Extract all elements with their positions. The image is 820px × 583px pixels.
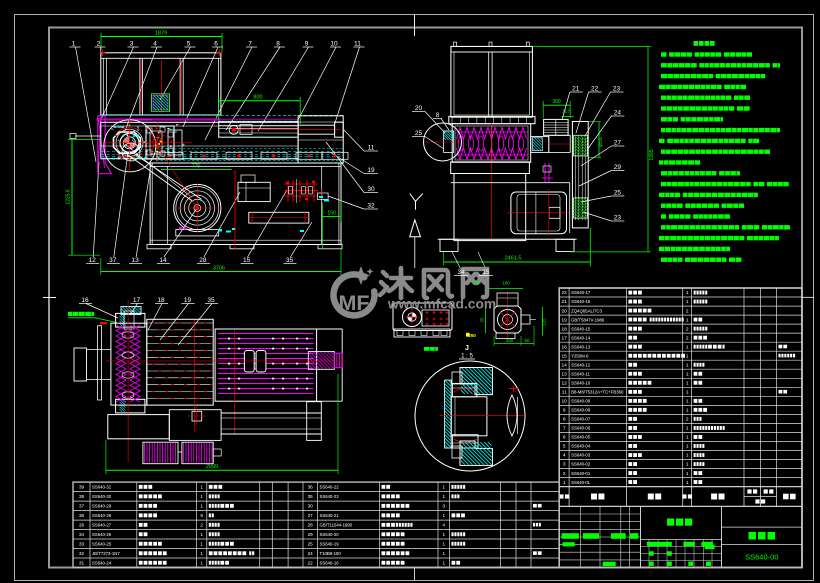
svg-text:1: 1 bbox=[443, 532, 446, 537]
svg-text:SS640-28: SS640-28 bbox=[92, 513, 112, 518]
svg-text:6: 6 bbox=[214, 41, 218, 48]
svg-text:SS640-05: SS640-05 bbox=[571, 435, 591, 440]
svg-text:15: 15 bbox=[562, 353, 568, 359]
svg-text:2: 2 bbox=[686, 417, 689, 423]
svg-text:29: 29 bbox=[614, 164, 622, 171]
svg-text:GB/T5847V-1986: GB/T5847V-1986 bbox=[571, 317, 605, 322]
svg-text:SS640-16: SS640-16 bbox=[571, 299, 591, 304]
svg-text:160: 160 bbox=[506, 338, 514, 343]
svg-text:11: 11 bbox=[562, 390, 567, 396]
svg-text:1: 1 bbox=[686, 462, 689, 468]
svg-text:6: 6 bbox=[563, 435, 566, 441]
svg-text:36: 36 bbox=[308, 485, 314, 490]
svg-text:35: 35 bbox=[286, 257, 294, 264]
svg-text:2461.5: 2461.5 bbox=[505, 256, 522, 262]
svg-text:10: 10 bbox=[330, 41, 338, 48]
svg-text:www.mfcad.com: www.mfcad.com bbox=[387, 297, 496, 312]
svg-text:1: 1 bbox=[686, 372, 689, 378]
svg-text:1: 1 bbox=[200, 561, 203, 566]
svg-text:SS640-03: SS640-03 bbox=[571, 453, 591, 458]
svg-text:4: 4 bbox=[563, 453, 566, 459]
svg-text:8: 8 bbox=[563, 417, 566, 423]
svg-text:1: 1 bbox=[686, 480, 689, 486]
svg-text:1: 1 bbox=[686, 362, 689, 368]
svg-text:25: 25 bbox=[415, 130, 423, 137]
svg-text:1: 1 bbox=[686, 399, 689, 405]
svg-text:100: 100 bbox=[502, 281, 510, 286]
svg-text:SS640-07: SS640-07 bbox=[571, 417, 591, 422]
svg-text:1: 1 bbox=[200, 551, 203, 556]
svg-text:J: J bbox=[465, 345, 469, 352]
svg-text:1: 1 bbox=[686, 444, 689, 450]
svg-text:Y250M-6: Y250M-6 bbox=[571, 353, 589, 358]
svg-text:1: 1 bbox=[443, 485, 446, 490]
svg-text:SS640-16: SS640-16 bbox=[320, 561, 340, 566]
svg-text:1: 1 bbox=[443, 551, 446, 556]
svg-text:SS640-21: SS640-21 bbox=[320, 513, 340, 518]
svg-text:SS640-30: SS640-30 bbox=[92, 494, 112, 499]
svg-text:SS640-15: SS640-15 bbox=[571, 326, 591, 331]
svg-text:738: 738 bbox=[473, 280, 481, 285]
svg-text:SS640-31: SS640-31 bbox=[92, 485, 112, 490]
svg-text:7: 7 bbox=[563, 426, 566, 432]
svg-text:27: 27 bbox=[308, 513, 314, 518]
svg-text:17: 17 bbox=[562, 335, 568, 341]
svg-text:SS640-24: SS640-24 bbox=[92, 561, 112, 566]
svg-text:16: 16 bbox=[81, 297, 89, 304]
svg-text:12: 12 bbox=[89, 257, 97, 264]
svg-text:113: 113 bbox=[562, 109, 570, 114]
svg-text:2999: 2999 bbox=[206, 464, 218, 470]
svg-text:2: 2 bbox=[97, 41, 101, 48]
svg-text:2: 2 bbox=[200, 523, 203, 528]
svg-text:3: 3 bbox=[443, 504, 446, 509]
svg-text:22: 22 bbox=[308, 561, 314, 566]
svg-text:1: 1 bbox=[72, 41, 76, 48]
svg-text:SS640-23: SS640-23 bbox=[320, 494, 340, 499]
svg-text:T10B8-150: T10B8-150 bbox=[320, 551, 342, 556]
svg-text:1: 1 bbox=[686, 299, 689, 305]
svg-text:1: 1 bbox=[443, 513, 446, 518]
svg-text:SS640-08: SS640-08 bbox=[571, 408, 591, 413]
svg-text:28: 28 bbox=[308, 523, 314, 528]
svg-text:SS640-17: SS640-17 bbox=[571, 290, 591, 295]
svg-text:MF: MF bbox=[338, 291, 369, 315]
svg-text:11: 11 bbox=[354, 41, 361, 48]
svg-text:SS640-0L: SS640-0L bbox=[571, 480, 591, 485]
svg-text:18: 18 bbox=[562, 326, 568, 332]
svg-text:11: 11 bbox=[368, 145, 375, 152]
svg-text:10: 10 bbox=[562, 399, 568, 405]
svg-text:50: 50 bbox=[524, 338, 530, 343]
svg-text:SS640-20: SS640-20 bbox=[320, 532, 340, 537]
svg-text:125: 125 bbox=[542, 318, 547, 326]
svg-text:19: 19 bbox=[562, 317, 568, 323]
svg-text:38: 38 bbox=[79, 494, 85, 499]
svg-text:15: 15 bbox=[243, 257, 251, 264]
svg-text:SS640-06: SS640-06 bbox=[571, 426, 591, 431]
svg-text:1: 1 bbox=[686, 317, 689, 323]
svg-text:1: 1 bbox=[686, 381, 689, 387]
svg-text:26: 26 bbox=[79, 523, 85, 528]
svg-text:2: 2 bbox=[686, 326, 689, 332]
svg-text:SS640-11: SS640-11 bbox=[571, 372, 590, 377]
svg-text:1: 1 bbox=[686, 344, 689, 350]
svg-text:32: 32 bbox=[79, 551, 85, 556]
svg-text:1: 1 bbox=[443, 494, 446, 499]
svg-text:28: 28 bbox=[199, 257, 207, 264]
svg-text:SS640-29: SS640-29 bbox=[92, 504, 112, 509]
svg-text:SS640-12: SS640-12 bbox=[571, 362, 591, 367]
svg-text:30: 30 bbox=[367, 186, 375, 193]
svg-text:19: 19 bbox=[184, 297, 192, 304]
svg-text:5: 5 bbox=[187, 41, 191, 48]
svg-text:33: 33 bbox=[79, 542, 85, 547]
svg-text:SS640-22: SS640-22 bbox=[320, 485, 340, 490]
svg-text:23: 23 bbox=[613, 86, 621, 93]
svg-text:22: 22 bbox=[591, 86, 599, 93]
svg-text:1: 1 bbox=[686, 390, 689, 396]
svg-text:32: 32 bbox=[367, 203, 375, 210]
svg-text:13: 13 bbox=[562, 372, 568, 378]
svg-text:1: 1 bbox=[200, 542, 203, 547]
svg-text:1995: 1995 bbox=[649, 149, 655, 160]
svg-text:800: 800 bbox=[253, 95, 262, 101]
svg-text:775: 775 bbox=[192, 164, 201, 170]
svg-text:SS640-09: SS640-09 bbox=[571, 399, 591, 404]
svg-text:SS640-02: SS640-02 bbox=[571, 462, 591, 467]
svg-text:35: 35 bbox=[207, 297, 215, 304]
svg-text:1879: 1879 bbox=[155, 31, 167, 37]
svg-text:25: 25 bbox=[614, 190, 622, 197]
svg-text:22: 22 bbox=[562, 290, 568, 296]
svg-text:GB/T11544-1990: GB/T11544-1990 bbox=[320, 523, 353, 528]
svg-text:2: 2 bbox=[686, 308, 689, 314]
svg-text:JB/T7273-1N7: JB/T7273-1N7 bbox=[92, 551, 120, 556]
svg-text:SS640-01: SS640-01 bbox=[571, 471, 591, 476]
svg-text:34: 34 bbox=[79, 532, 85, 537]
svg-text:5: 5 bbox=[563, 444, 566, 450]
svg-text:25: 25 bbox=[480, 317, 485, 323]
svg-text:18: 18 bbox=[157, 297, 165, 304]
svg-text:12: 12 bbox=[562, 381, 568, 387]
svg-text:30: 30 bbox=[308, 504, 314, 509]
svg-text:8: 8 bbox=[276, 41, 280, 48]
svg-text:SS640-14: SS640-14 bbox=[571, 335, 591, 340]
svg-text:36: 36 bbox=[79, 513, 85, 518]
svg-text:SS640-13: SS640-13 bbox=[571, 344, 591, 349]
svg-text:SS640-04: SS640-04 bbox=[571, 444, 591, 449]
svg-text:21: 21 bbox=[562, 299, 568, 305]
svg-text:3: 3 bbox=[563, 462, 566, 468]
svg-text:24: 24 bbox=[614, 110, 622, 117]
svg-text:37: 37 bbox=[109, 257, 117, 264]
svg-text:3: 3 bbox=[130, 41, 134, 48]
svg-text:24: 24 bbox=[308, 551, 314, 556]
svg-text:9: 9 bbox=[563, 408, 566, 414]
svg-text:1: 1 bbox=[686, 471, 689, 477]
svg-text:35: 35 bbox=[308, 494, 314, 499]
svg-text:1: 1 bbox=[686, 426, 689, 432]
svg-text:1225.6: 1225.6 bbox=[66, 189, 72, 205]
svg-text:1: 1 bbox=[686, 353, 689, 359]
svg-text:14: 14 bbox=[562, 362, 568, 368]
svg-text:4: 4 bbox=[443, 523, 446, 528]
svg-text:B8-M8/T5312A+TC+FB360: B8-M8/T5312A+TC+FB360 bbox=[571, 390, 624, 395]
svg-text:9: 9 bbox=[200, 513, 203, 518]
svg-text:1: 1 bbox=[686, 453, 689, 459]
svg-text:150: 150 bbox=[327, 211, 336, 217]
svg-text:SS640-00: SS640-00 bbox=[745, 553, 778, 562]
svg-text:31: 31 bbox=[79, 561, 85, 566]
svg-text:9: 9 bbox=[305, 41, 309, 48]
svg-text:2: 2 bbox=[563, 471, 566, 477]
svg-text:1: 1 bbox=[200, 504, 203, 509]
svg-text:SS640-10: SS640-10 bbox=[571, 381, 591, 386]
svg-text:27: 27 bbox=[614, 140, 622, 147]
svg-text:300: 300 bbox=[552, 99, 561, 105]
svg-text:25: 25 bbox=[308, 542, 314, 547]
svg-text:34: 34 bbox=[458, 270, 465, 276]
svg-text:1: 1 bbox=[443, 561, 446, 566]
svg-text:1: 1 bbox=[200, 494, 203, 499]
svg-text:SS640-25: SS640-25 bbox=[92, 542, 112, 547]
svg-text:23: 23 bbox=[614, 215, 622, 222]
svg-text:SS640-26: SS640-26 bbox=[92, 532, 112, 537]
svg-text:1: 1 bbox=[686, 290, 689, 296]
svg-text:1: 1 bbox=[563, 480, 566, 486]
svg-text:29: 29 bbox=[308, 532, 314, 537]
svg-text:21: 21 bbox=[572, 86, 580, 93]
svg-text:20: 20 bbox=[415, 105, 423, 112]
svg-text:1: 1 bbox=[686, 408, 689, 414]
svg-text:39: 39 bbox=[79, 485, 85, 490]
svg-text:7: 7 bbox=[248, 41, 252, 48]
svg-text:1: 1 bbox=[686, 435, 689, 441]
svg-text:17: 17 bbox=[133, 297, 141, 304]
svg-text:37: 37 bbox=[79, 504, 85, 509]
svg-text:1: 1 bbox=[200, 532, 203, 537]
svg-text:13: 13 bbox=[131, 257, 139, 264]
svg-text:15: 15 bbox=[483, 270, 490, 276]
svg-text:19: 19 bbox=[367, 167, 375, 174]
svg-text:20: 20 bbox=[562, 308, 568, 314]
svg-text:ZQ4Q65AL/7C3: ZQ4Q65AL/7C3 bbox=[571, 308, 602, 313]
svg-text:1: 1 bbox=[200, 485, 203, 490]
svg-text:3706: 3706 bbox=[213, 266, 225, 272]
svg-text:14: 14 bbox=[159, 257, 167, 264]
svg-text:16: 16 bbox=[562, 344, 568, 350]
svg-text:2: 2 bbox=[686, 335, 689, 341]
svg-text:SS640-27: SS640-27 bbox=[92, 523, 112, 528]
svg-text:1: 1 bbox=[443, 542, 446, 547]
svg-text:4: 4 bbox=[153, 41, 157, 48]
svg-text:SS640-19: SS640-19 bbox=[320, 542, 340, 547]
svg-text:φ226: φ226 bbox=[598, 136, 603, 146]
